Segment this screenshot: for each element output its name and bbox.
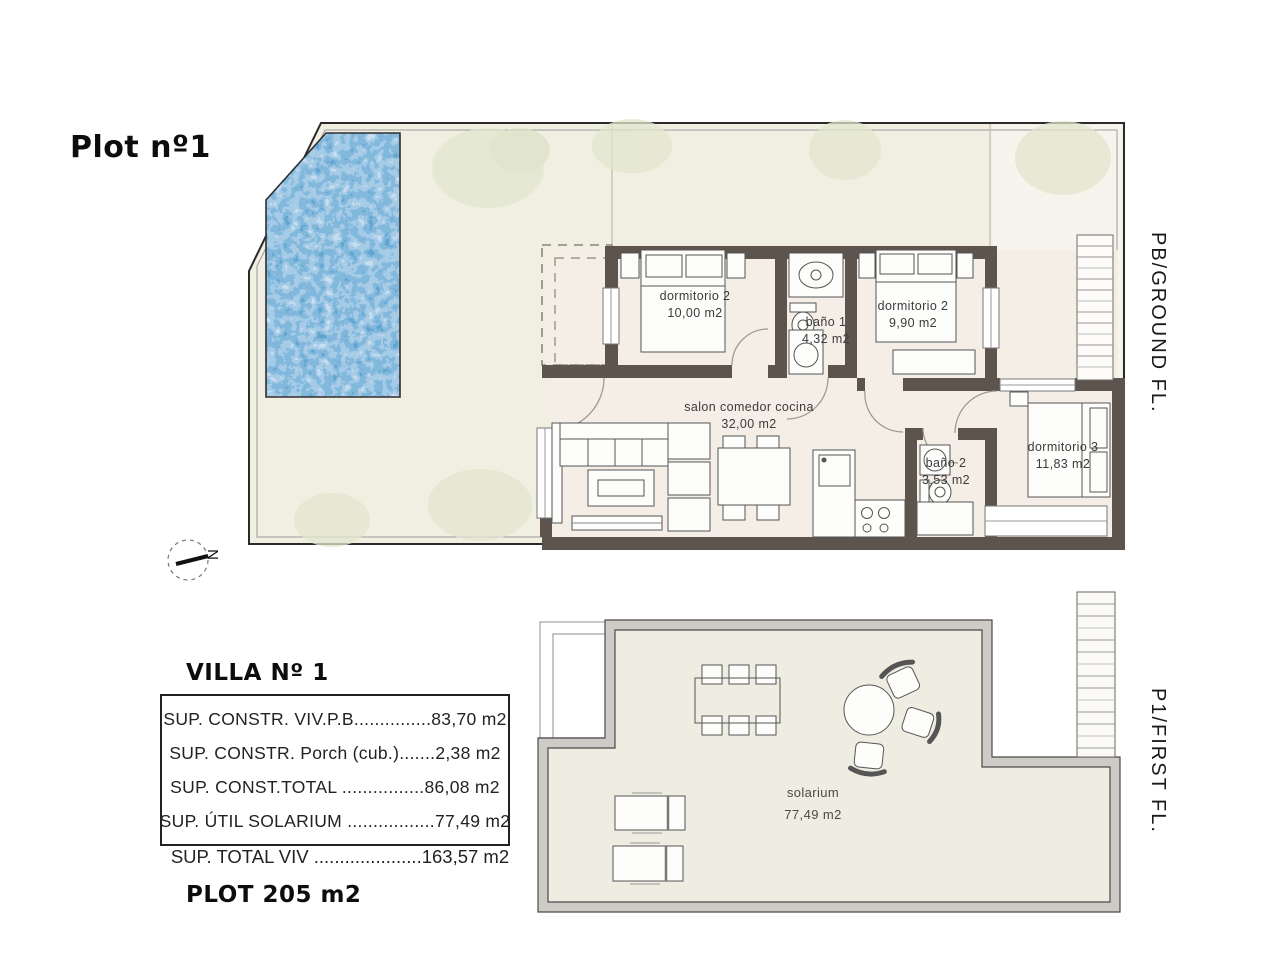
lower-roof-outline: [540, 622, 612, 738]
room-label-solarium: solarium 77,49 m2: [784, 782, 841, 826]
room-name: dormitorio 2: [878, 299, 949, 313]
room-name: baño 2: [926, 456, 967, 470]
room-area: 9,90 m2: [878, 315, 949, 332]
first-floor-side-label: P1/FIRST FL.: [1146, 688, 1169, 834]
room-area: 77,49 m2: [784, 804, 841, 826]
room-label-dormitorio2b: dormitorio 2 9,90 m2: [878, 298, 949, 332]
room-area: 32,00 m2: [684, 416, 814, 433]
page-title: Plot nº1: [70, 130, 211, 165]
room-area: 3,53 m2: [922, 472, 970, 489]
villa-summary-box: SUP. CONSTR. VIV.P.B...............83,70…: [160, 694, 510, 846]
north-compass: [168, 540, 208, 580]
summary-row-total: SUP. CONST.TOTAL ................86,08 m…: [170, 777, 500, 798]
room-area: 11,83 m2: [1028, 456, 1099, 473]
room-label-salon: salon comedor cocina 32,00 m2: [684, 399, 814, 433]
villa-summary-heading: VILLA Nº 1: [186, 660, 329, 686]
room-name: baño 1: [806, 315, 847, 329]
room-name: salon comedor cocina: [684, 400, 814, 414]
swimming-pool: [260, 128, 406, 402]
room-name: solarium: [784, 782, 841, 804]
floor-plan-sheet: Plot nº1 dormitorio 2 10,00 m2 baño 1 4,…: [0, 0, 1280, 960]
exterior-stair-ground: [1077, 235, 1113, 380]
room-name: dormitorio 2: [660, 289, 731, 303]
exterior-stair-first: [1077, 592, 1115, 757]
summary-row-solarium: SUP. ÚTIL SOLARIUM .................77,4…: [160, 811, 511, 832]
summary-row-porch: SUP. CONSTR. Porch (cub.).......2,38 m2: [169, 743, 500, 764]
first-floor-plan: [538, 592, 1120, 912]
ground-floor-plan: [168, 119, 1125, 580]
ground-floor-side-label: PB/GROUND FL.: [1146, 232, 1169, 414]
room-area: 4,32 m2: [802, 331, 850, 348]
room-label-dormitorio3: dormitorio 3 11,83 m2: [1028, 439, 1099, 473]
summary-total-row: SUP. TOTAL VIV .....................163,…: [150, 846, 530, 868]
summary-row-viv-pb: SUP. CONSTR. VIV.P.B...............83,70…: [163, 709, 506, 730]
room-label-dormitorio2a: dormitorio 2 10,00 m2: [660, 288, 731, 322]
room-label-bano2: baño 2 3,53 m2: [922, 455, 970, 489]
room-area: 10,00 m2: [660, 305, 731, 322]
north-label: N: [204, 549, 221, 560]
plot-size-label: PLOT 205 m2: [186, 882, 361, 908]
room-label-bano1: baño 1 4,32 m2: [802, 314, 850, 348]
room-name: dormitorio 3: [1028, 440, 1099, 454]
